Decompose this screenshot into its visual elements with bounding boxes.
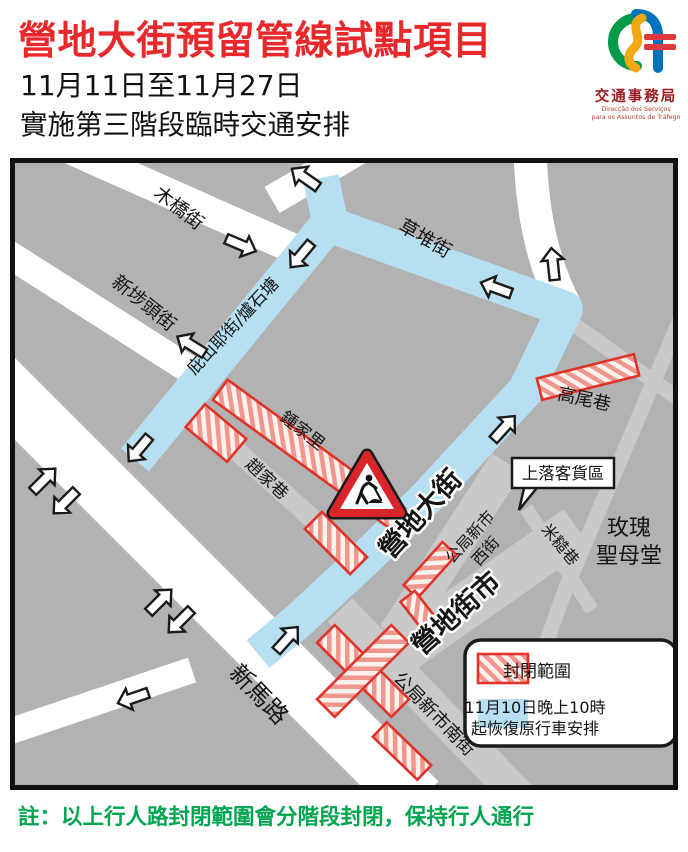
traffic-map: 木橋街 新埗頭街 庇山耶街/爐石塘 草堆街 鍾家里 趙家巷 營地大街 高尾巷 米… [10, 158, 678, 790]
dsat-logo-icon [592, 5, 680, 81]
logo-yellow-s-icon [629, 18, 642, 68]
logo-org-name-pt-2: para os Assuntos de Tráfego [588, 114, 684, 122]
label-church-line2: 聖母堂 [596, 544, 662, 569]
logo-org-name: 交通事務局 [588, 85, 684, 106]
callout-label: 上落客貨區 [522, 464, 605, 483]
legend-reopen-line1: 11月10日晚上10時 [464, 698, 605, 717]
traffic-map-svg: 木橋街 新埗頭街 庇山耶街/爐石塘 草堆街 鍾家里 趙家巷 營地大街 高尾巷 米… [10, 158, 678, 790]
legend-reopen-line2: 起恢復原行車安排 [471, 719, 599, 738]
label-church-line1: 玫瑰 [607, 516, 651, 541]
traffic-notice-poster: 營地大街預留管線試點項目 11月11日至11月27日 實施第三階段臨時交通安排 … [0, 0, 688, 852]
dsat-logo: 交通事務局 Direcção dos Serviços para os Assu… [588, 5, 684, 122]
date-range: 11月11日至11月27日 [20, 64, 303, 104]
subtitle: 實施第三階段臨時交通安排 [20, 102, 350, 142]
footnote: 註：以上行人路封閉範圍會分階段封閉，保持行人通行 [18, 800, 534, 831]
logo-org-name-pt-1: Direcção dos Serviços [588, 106, 684, 114]
map-legend: 封閉範圍 11月10日晚上10時 起恢復原行車安排 [464, 640, 677, 746]
logo-red-bar-icon [644, 34, 676, 40]
logo-red-bar-icon [644, 44, 676, 50]
page-title: 營地大街預留管線試點項目 [18, 10, 492, 66]
legend-closed-label: 封閉範圍 [503, 662, 571, 682]
